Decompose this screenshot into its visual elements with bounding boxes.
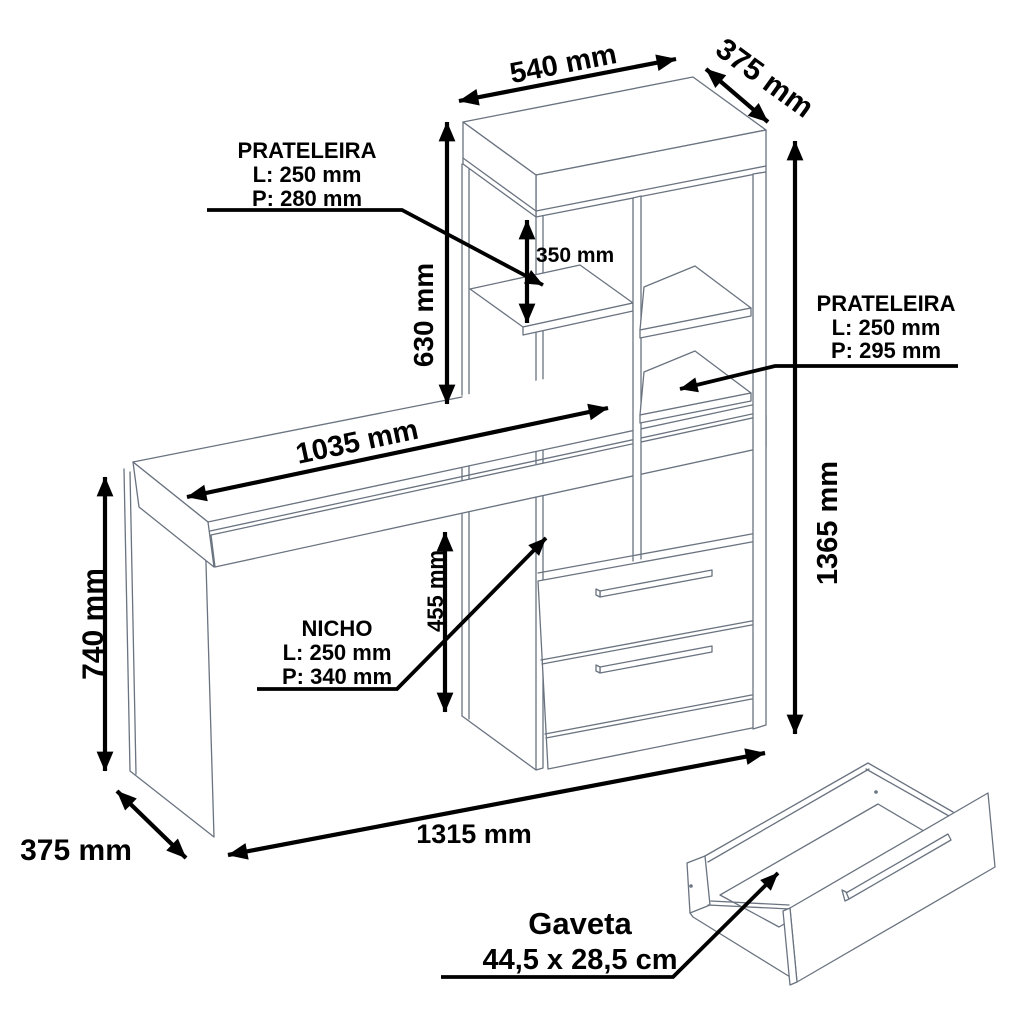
callout-shelf-left-length: L: 250 mm [253, 162, 362, 187]
divider-face [633, 196, 641, 561]
callout-drawer-title: Gaveta [528, 906, 632, 941]
screw-dot [874, 790, 878, 794]
dim-label-niche-height: 455 mm [423, 550, 448, 632]
hutch-right-panel-face [753, 172, 766, 729]
dim-label-desk-depth: 375 mm [20, 834, 132, 867]
dim-label-total-length: 1315 mm [416, 819, 532, 849]
callout-shelf-right-title: PRATELEIRA [817, 291, 956, 316]
hutch-center-divider [633, 196, 641, 561]
dim-label-desk-height: 740 mm [77, 568, 110, 680]
callout-shelf-right-depth: P: 295 mm [831, 338, 941, 363]
callout-shelf-right-length: L: 250 mm [832, 315, 941, 340]
callout-niche-length: L: 250 mm [283, 640, 392, 665]
callout-shelf-left-depth: P: 280 mm [252, 186, 362, 211]
callout-niche-title: NICHO [302, 616, 373, 641]
callout-niche-depth: P: 340 mm [282, 664, 392, 689]
callout-shelf-left-title: PRATELEIRA [238, 138, 377, 163]
diagram-canvas: 540 mm 375 mm 630 mm 350 mm 1035 mm 740 … [0, 0, 1028, 1028]
callout-drawer-size: 44,5 x 28,5 cm [482, 944, 677, 976]
screw-dot [689, 884, 693, 888]
dim-label-shelf-clearance: 350 mm [536, 244, 614, 267]
hutch-right-panel [753, 172, 766, 729]
dim-label-upper-height: 630 mm [408, 263, 439, 367]
dim-label-total-height: 1365 mm [812, 461, 844, 585]
furniture-dimension-diagram: 540 mm 375 mm 630 mm 350 mm 1035 mm 740 … [0, 0, 1028, 1028]
